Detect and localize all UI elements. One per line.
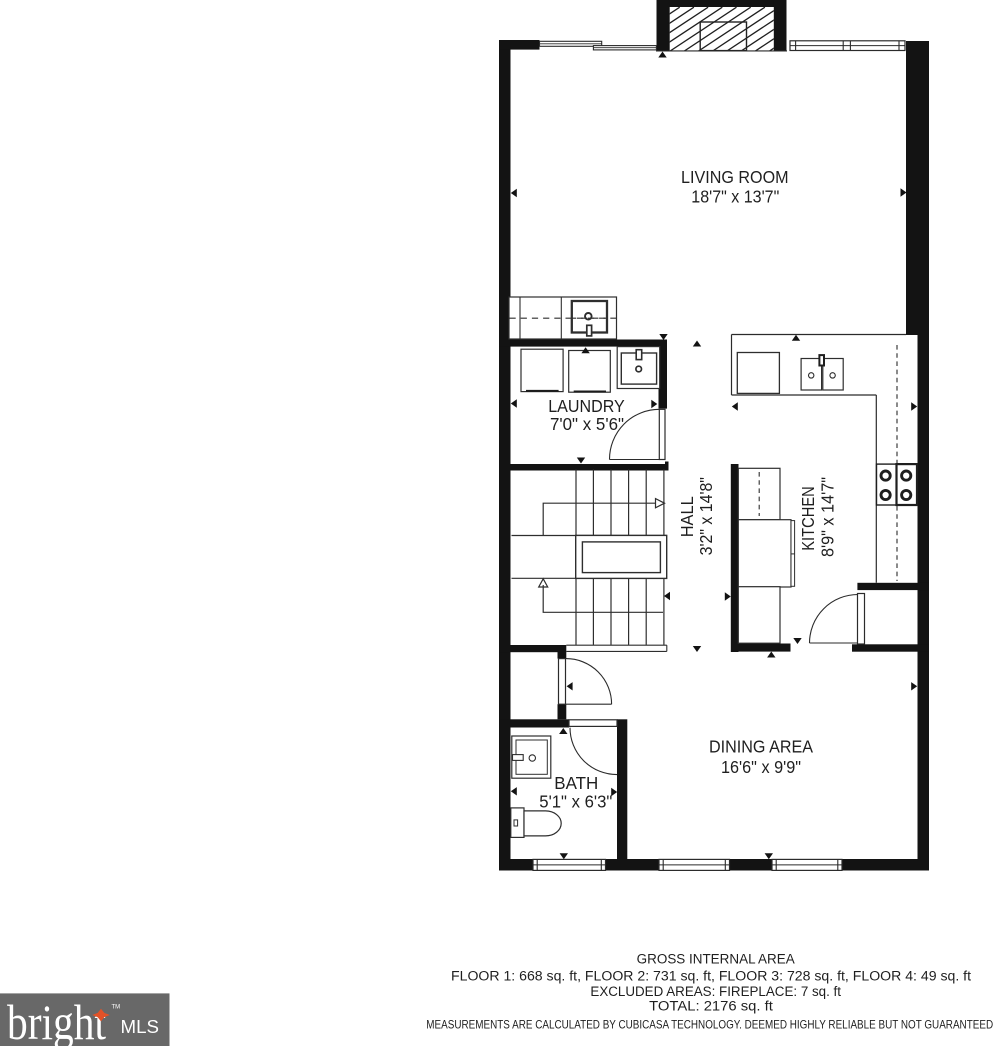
- svg-text:BATH: BATH: [554, 773, 598, 793]
- svg-text:LIVING ROOM: LIVING ROOM: [681, 167, 789, 187]
- svg-text:LAUNDRY: LAUNDRY: [548, 396, 625, 416]
- svg-text:bright: bright: [7, 994, 106, 1046]
- svg-text:GROSS INTERNAL AREA: GROSS INTERNAL AREA: [637, 952, 795, 967]
- svg-text:FLOOR 1: 668 sq. ft, FLOOR 2:: FLOOR 1: 668 sq. ft, FLOOR 2: 731 sq. ft…: [451, 968, 971, 983]
- svg-text:TOTAL: 2176 sq. ft: TOTAL: 2176 sq. ft: [649, 998, 773, 1013]
- svg-text:TM: TM: [112, 1005, 121, 1011]
- svg-text:DINING AREA: DINING AREA: [709, 736, 813, 756]
- svg-text:16'6" x 9'9": 16'6" x 9'9": [721, 757, 801, 777]
- svg-text:HALL: HALL: [677, 496, 697, 537]
- svg-text:5'1" x 6'3": 5'1" x 6'3": [539, 791, 612, 811]
- svg-text:3'2" x 14'8": 3'2" x 14'8": [696, 477, 716, 555]
- svg-text:8'9" x 14'7": 8'9" x 14'7": [817, 477, 837, 557]
- svg-text:MEASUREMENTS ARE CALCULATED BY: MEASUREMENTS ARE CALCULATED BY CUBICASA …: [426, 1018, 993, 1032]
- svg-text:KITCHEN: KITCHEN: [798, 486, 818, 551]
- svg-text:18'7" x 13'7": 18'7" x 13'7": [691, 187, 779, 207]
- svg-text:EXCLUDED AREAS: FIREPLACE: 7 s: EXCLUDED AREAS: FIREPLACE: 7 sq. ft: [590, 984, 841, 999]
- svg-text:MLS: MLS: [121, 1016, 160, 1037]
- svg-text:7'0" x 5'6": 7'0" x 5'6": [550, 414, 624, 434]
